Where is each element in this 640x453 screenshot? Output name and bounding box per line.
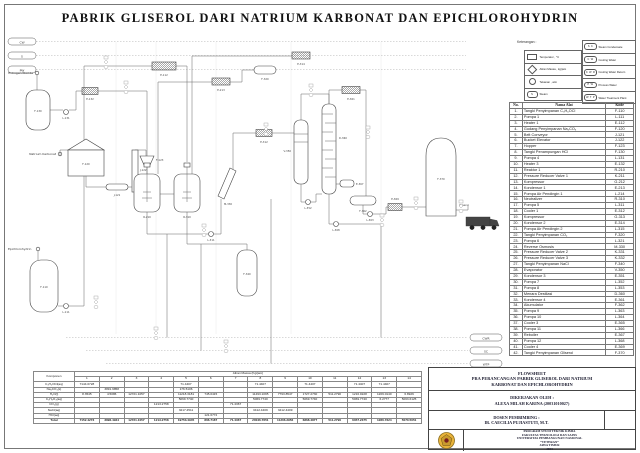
utility-pill-cwr: CWR — [470, 334, 502, 341]
equipment-code: F-362 — [359, 209, 367, 213]
evaporator-v350: V-350 — [283, 120, 308, 184]
total-value: 1286.7324 — [372, 418, 397, 423]
institution-section: PROGRAM STUDI TEKNIK KIMIA FAKULTAS TEKN… — [429, 430, 635, 451]
legend-row: C WCooling Water — [583, 54, 635, 67]
mass-flow-symbol — [527, 65, 536, 74]
advisor-signature-cell — [605, 411, 635, 429]
truck-icon — [466, 217, 499, 230]
flowsheet-line: KARBONAT DAN EPICHLOROHYDRIN — [491, 382, 572, 387]
tank-f130: F-130 — [26, 90, 50, 130]
inlet-hidrogen-klorida: Hidrogen Klorida — [8, 71, 39, 90]
legend-row: Aliran Massa , kg/jam — [525, 64, 581, 77]
total-value: 12721.1057 — [124, 418, 149, 423]
total-row: Total7152.42733896.494412721.10571213.27… — [34, 418, 422, 423]
pill-label: SC — [484, 349, 488, 353]
legend-row: Temperatur , °C — [525, 51, 581, 64]
hopper-f123: F-123 — [140, 156, 164, 165]
pill-label: CWR — [482, 336, 489, 340]
utility-pill-sc: SC — [470, 347, 502, 354]
total-value: 3896.4944 — [99, 418, 124, 423]
mass-balance-table: KomponenAliran Massa (Kg/jam)12345678910… — [33, 371, 422, 424]
total-value: 7152.4273 — [75, 418, 100, 423]
legend-row: Tekanan , atm — [525, 76, 581, 89]
utility-code-pill: S C — [584, 43, 597, 50]
legend-label: Steam — [540, 92, 548, 96]
inlet-label: Natrium Karbonat — [29, 152, 57, 156]
total-value: 20046.7651 — [248, 418, 273, 423]
institution-lines: PROGRAM STUDI TEKNIK KIMIA FAKULTAS TEKN… — [464, 430, 635, 451]
equipment-code: L-352 — [304, 206, 312, 210]
process-flow-diagram: CW S PW CWR SC WTP Hidrogen Klorida — [6, 34, 508, 367]
temperature-symbol — [527, 54, 537, 60]
equipment-code: V-350 — [283, 149, 291, 153]
equipment-code: M-330 — [224, 202, 232, 206]
pump-l363: L-363 — [366, 212, 374, 223]
equipment-table-body: 1.Tangki Penyimpanan C₃H₅OClF-1102.Pompa… — [510, 108, 634, 355]
pump-l311: L-311 — [207, 232, 215, 243]
reboiler-e367: E-367 — [340, 180, 364, 187]
flowsheet-page: PABRIK GLISEROL DARI NATRIUM KARBONAT DA… — [0, 0, 640, 453]
equipment-code: R-310 — [183, 215, 191, 219]
equip-no: 42. — [510, 350, 523, 356]
utility-code-pill: C W — [584, 56, 597, 63]
utility-pill-cw: CW — [8, 38, 36, 45]
equipment-code: E-132 — [86, 97, 94, 101]
inlet-epichlorohydrin: Epichlorohydrin — [8, 247, 40, 260]
tank-f110: F-110 — [30, 260, 58, 312]
equipment-code: E-314 — [297, 62, 305, 66]
table-row: 1.Tangki Penyimpanan C₃H₅OClF-110 — [510, 108, 634, 114]
neutralizer-r310: R-310 — [174, 163, 200, 219]
legend-label: Water Treatment Plant — [599, 96, 627, 100]
total-value: 866.7187 — [198, 418, 223, 423]
mass-balance-table-wrap: KomponenAliran Massa (Kg/jam)12345678910… — [33, 371, 422, 424]
legend-symbols: Temperatur , °C Aliran Massa , kg/jam Te… — [524, 50, 582, 101]
pump-l111: L-111 — [62, 304, 70, 315]
legend-label: Process Water — [599, 83, 617, 87]
tank-f370: F-370 — [426, 138, 456, 216]
equipment-code: L-363 — [366, 218, 374, 222]
legend-utility-codes: S CSteam CondensateC WCooling WaterC W R… — [582, 40, 636, 104]
utility-code-pill: W T P — [584, 94, 597, 101]
pump-l131: L-131 — [62, 110, 70, 121]
upn-logo-icon — [438, 432, 455, 449]
pump-l352: L-352 — [304, 200, 312, 211]
heater-e112: E-112 — [152, 62, 176, 77]
equipment-code: F-320 — [261, 77, 269, 81]
pressure-symbol — [529, 78, 536, 85]
legend-row: P WProcess Water — [583, 79, 635, 92]
heater-e132: E-132 — [82, 88, 98, 102]
equipment-code: F-370 — [437, 177, 445, 181]
pill-label: S — [21, 54, 23, 58]
legend-row: S Steam — [525, 89, 581, 101]
process-lines — [50, 56, 468, 364]
utility-pill-s: S — [8, 52, 36, 59]
accumulator-f362: F-362 — [350, 196, 376, 213]
equipment-code: L-131 — [62, 116, 70, 120]
legend-label: Aliran Massa , kg/jam — [540, 67, 567, 71]
equipment-code: E-312 — [260, 140, 268, 144]
advisor-section: DOSEN PEMBIMBING : IR. CAECILIA PUJIASTU… — [429, 411, 635, 430]
pill-label: WTP — [483, 362, 490, 366]
advisor-name: IR. CAECILIA PUJIASTUTI, M.T. — [484, 420, 548, 425]
belt-conveyor-j121: J-121 — [106, 184, 128, 197]
cooler-e369: E-369 — [388, 197, 402, 211]
equip-name: Tangki Penyimpanan Gliserol — [522, 350, 605, 356]
equipment-code: F-340 — [243, 272, 251, 276]
inlet-label: Hidrogen Klorida — [8, 71, 33, 75]
total-value: 11206.2956 — [273, 418, 298, 423]
equipment-code: F-123 — [156, 158, 164, 162]
legend-label: Steam Condensate — [599, 45, 623, 49]
total-label: Total — [34, 418, 75, 423]
equipment-code: F-120 — [82, 162, 90, 166]
equipment-code: F-110 — [40, 285, 48, 289]
total-value: 71.4367 — [223, 418, 248, 423]
legend-label: Cooling Water Return — [599, 70, 626, 74]
legend-label: Cooling Water — [599, 58, 617, 62]
total-value: 19753.4945 — [174, 418, 199, 423]
utility-code-pill: C W R — [584, 69, 597, 76]
cooler-e312: E-312 — [256, 130, 272, 145]
equip-code: F-370 — [606, 350, 634, 356]
university-logo — [429, 430, 464, 451]
equipment-code: D-360 — [339, 136, 347, 140]
legend-row: C W RCooling Water Return — [583, 66, 635, 79]
equipment-code: E-361 — [347, 97, 355, 101]
total-value: 6868.4877 — [298, 418, 323, 423]
equipment-code: J-122 — [139, 168, 147, 172]
total-value: 6357.2375 — [347, 418, 372, 423]
total-value: 5070.5051 — [397, 418, 422, 423]
equipment-code: E-369 — [391, 197, 399, 201]
silo-f120: F-120 — [68, 139, 104, 176]
inlet-natrium-karbonat: Natrium Karbonat — [29, 150, 68, 156]
reverse-osmosis-m330: M-330 — [218, 168, 236, 206]
equipment-code: E-112 — [160, 73, 168, 77]
author-name: ALEXA MILAH KARINA (20031010027) — [495, 401, 570, 406]
tank-f340: F-340 — [237, 250, 257, 296]
author-section: DIKERJAKAN OLEH : ALEXA MILAH KARINA (20… — [429, 391, 635, 411]
legend-label: Temperatur , °C — [540, 55, 560, 59]
pump-l368: L-368 — [332, 222, 340, 233]
table-row: 4.Gudang Penyimpanan Na₂CO₃F-120 — [510, 126, 634, 132]
utility-lines — [36, 42, 468, 364]
total-value: 1213.2758 — [149, 418, 174, 423]
condenser-e314: E-314 — [292, 52, 310, 66]
equipment-code: F-130 — [34, 109, 42, 113]
komponen-header: Komponen — [34, 372, 75, 382]
equipment-code: L-311 — [207, 238, 215, 242]
legend-row: S CSteam Condensate — [583, 41, 635, 54]
equipment-code: L-368 — [332, 228, 340, 232]
condenser-e361: E-361 — [342, 87, 360, 102]
steam-symbol: S — [527, 91, 538, 98]
institution-line: 2023 — [546, 448, 552, 452]
table-row: 42.Tangki Penyimpanan GliserolF-370 — [510, 350, 634, 356]
legend-label: Tekanan , atm — [540, 80, 558, 84]
equipment-code: J-121 — [113, 193, 121, 197]
equipment-code: E-367 — [356, 182, 364, 186]
flowsheet-title-section: FLOWSHEET PRA PERANCANGAN PABRIK GLISERO… — [429, 368, 635, 391]
utility-pill-wtp: WTP — [470, 360, 502, 367]
inlet-label: Epichlorohydrin — [8, 247, 32, 251]
equipment-code: L-111 — [62, 310, 70, 314]
utility-code-pill: P W — [584, 82, 597, 89]
pill-label: CW — [19, 40, 24, 44]
equipment-table: No. Nama Alat Kode 1.Tangki Penyimpanan … — [509, 102, 634, 356]
equipment-code: R-210 — [143, 215, 151, 219]
equipment-code: E-213 — [217, 88, 225, 92]
condenser-e213: E-213 — [212, 78, 230, 92]
page-title: PABRIK GLISEROL DARI NATRIUM KARBONAT DA… — [0, 11, 640, 26]
title-block: FLOWSHEET PRA PERANCANGAN PABRIK GLISERO… — [428, 367, 636, 450]
total-value: 511.2790 — [322, 418, 347, 423]
legend-heading: Keterangan : — [517, 40, 536, 44]
tank-f320: F-320 — [254, 66, 276, 81]
